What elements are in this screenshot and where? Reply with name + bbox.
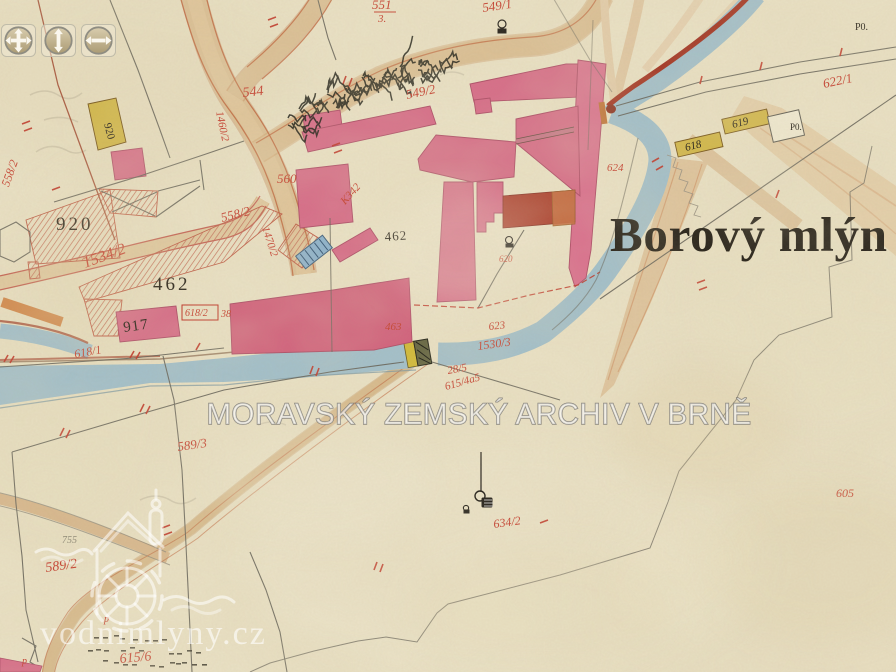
svg-text:MORAVSKÝ ZEMSKÝ ARCHIV V BRNĚ: MORAVSKÝ ZEMSKÝ ARCHIV V BRNĚ bbox=[206, 398, 751, 431]
svg-text:vodnimlyny.cz: vodnimlyny.cz bbox=[40, 615, 267, 652]
